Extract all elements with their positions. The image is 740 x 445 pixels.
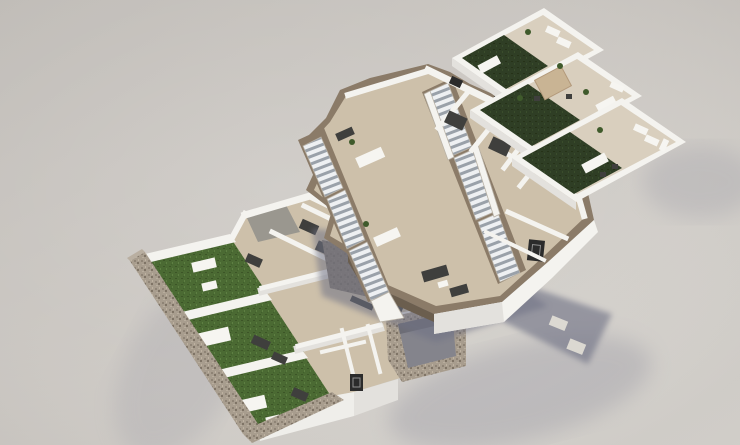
- floorplan-render-svg: [0, 0, 740, 445]
- render-canvas: [0, 0, 740, 445]
- facade-window: [350, 374, 363, 391]
- potted-plant: [525, 29, 531, 35]
- terrace-chair: [600, 172, 606, 177]
- potted-plant: [517, 95, 523, 101]
- potted-plant: [349, 139, 355, 145]
- potted-plant: [583, 89, 589, 95]
- terrace-chair: [612, 164, 618, 169]
- potted-plant: [597, 127, 603, 133]
- potted-plant: [363, 221, 369, 227]
- potted-plant: [557, 63, 563, 69]
- pergola-chair: [534, 96, 540, 101]
- pergola-chair: [566, 94, 572, 99]
